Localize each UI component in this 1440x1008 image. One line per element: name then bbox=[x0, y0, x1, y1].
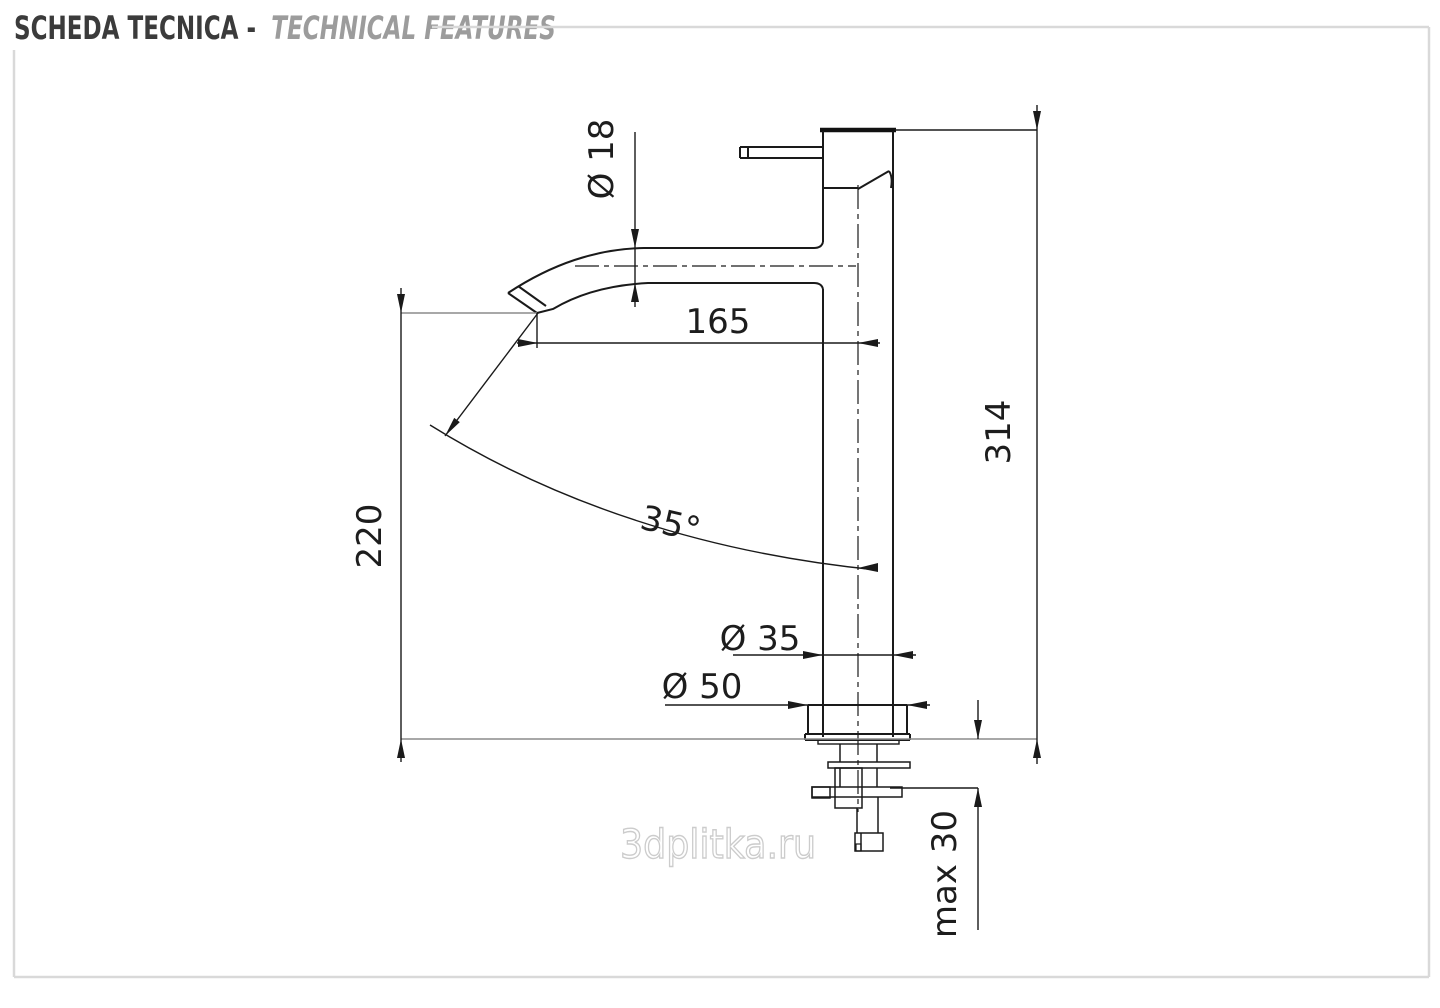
dimension-label-spout-reach: 165 bbox=[686, 302, 751, 342]
dimension-label-spout-angle: 35° bbox=[637, 498, 705, 551]
dimension-label-deck-thickness: max 30 bbox=[925, 810, 965, 938]
dimension-spout-diameter: Ø 18 bbox=[582, 119, 639, 307]
dimension-spout-height: 220 bbox=[350, 288, 405, 762]
faucet-spout bbox=[508, 242, 856, 313]
technical-sheet: SCHEDA TECNICA - TECHNICAL FEATURES 3dpl… bbox=[0, 0, 1440, 1008]
dimension-body-diameter: Ø 35 bbox=[720, 619, 916, 659]
dimension-spout-angle: 35° bbox=[430, 313, 878, 572]
dimension-label-spout-diameter: Ø 18 bbox=[582, 119, 622, 200]
dimension-total-height: 314 bbox=[895, 105, 1041, 764]
dimension-deck-thickness: max 30 bbox=[890, 700, 982, 938]
dimension-label-total-height: 314 bbox=[979, 400, 1019, 465]
dimension-label-spout-height: 220 bbox=[350, 504, 390, 569]
faucet-technical-drawing: 3dplitka.ru bbox=[0, 0, 1440, 1008]
faucet-handle bbox=[740, 147, 823, 158]
dimension-label-base-diameter: Ø 50 bbox=[662, 667, 743, 707]
dimension-base-diameter: Ø 50 bbox=[662, 667, 930, 709]
watermark-text: 3dplitka.ru bbox=[620, 822, 816, 868]
faucet-outline bbox=[508, 130, 910, 851]
fixing-hardware bbox=[812, 744, 910, 851]
dimension-label-body-diameter: Ø 35 bbox=[720, 619, 801, 659]
dimension-spout-reach: 165 bbox=[517, 302, 880, 348]
